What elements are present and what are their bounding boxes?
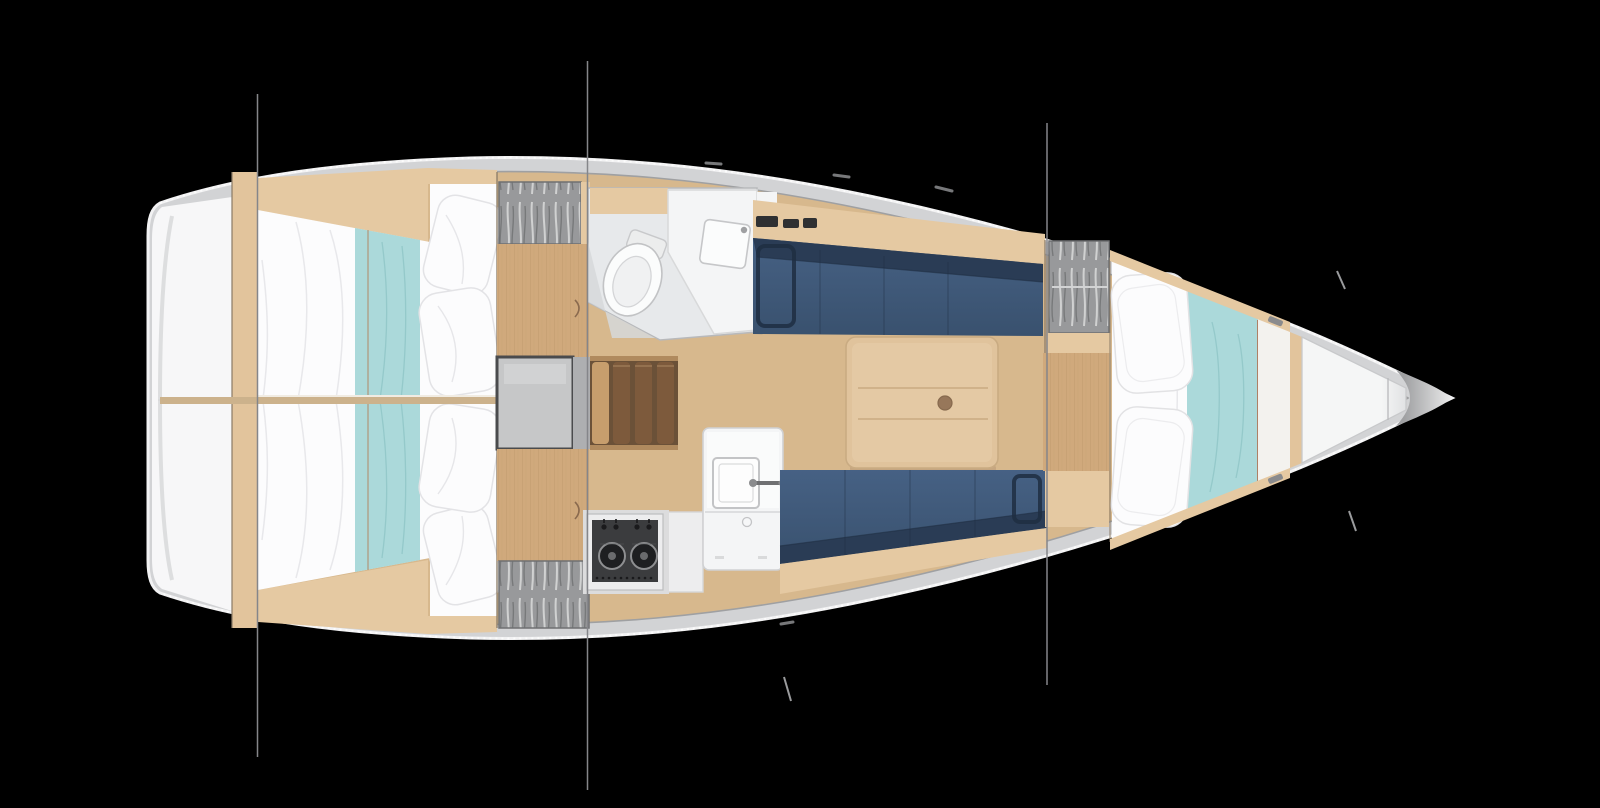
berth-teal-runner (355, 228, 420, 400)
boat-floor-plan (0, 0, 1600, 808)
head-cabinet (590, 188, 668, 214)
berth-teal-runner (355, 400, 420, 572)
vberth-foot-sheet (1258, 319, 1290, 483)
head-sink (699, 219, 751, 269)
cabin-sole-starboard (497, 449, 589, 561)
fwd-cabin-sole (1043, 353, 1109, 471)
vent-slot (758, 556, 767, 559)
vberth-footboard (1290, 332, 1302, 468)
aft-shelf-bottom-sliver (428, 616, 497, 634)
salon-table (846, 337, 998, 472)
stay-tick-bow-bottom (1349, 511, 1356, 531)
aft-cabin-divider (160, 397, 497, 404)
aft-shelf-top-sliver (428, 168, 497, 184)
step-slat (635, 362, 652, 444)
forward-column (1043, 240, 1111, 542)
table-knob (938, 396, 952, 410)
companionway-steps (590, 356, 678, 450)
galley-sink-unit (703, 428, 784, 570)
head-compartment (588, 188, 777, 340)
hanging-locker-aft-port (499, 182, 581, 244)
step-slat (592, 362, 609, 444)
step-slat (613, 362, 630, 444)
stay-tick-bow-top (1337, 271, 1345, 289)
locker-latch (743, 518, 752, 527)
stay-tick-stern-bottom (784, 677, 791, 701)
step-slat (657, 362, 674, 444)
head-faucet (741, 227, 747, 233)
fwd-seat-wood (1045, 471, 1109, 527)
table-inner (852, 343, 992, 462)
forward-cabin (1110, 250, 1406, 550)
vberth-teal-runner (1187, 290, 1258, 511)
engine-highlight (504, 364, 566, 384)
floor-plan-canvas (0, 0, 1600, 808)
stove (587, 514, 663, 590)
salon-port (753, 200, 1045, 336)
fwd-shelf (1047, 333, 1111, 353)
hanging-locker-aft-starboard (499, 561, 589, 628)
vent-slot (715, 556, 724, 559)
